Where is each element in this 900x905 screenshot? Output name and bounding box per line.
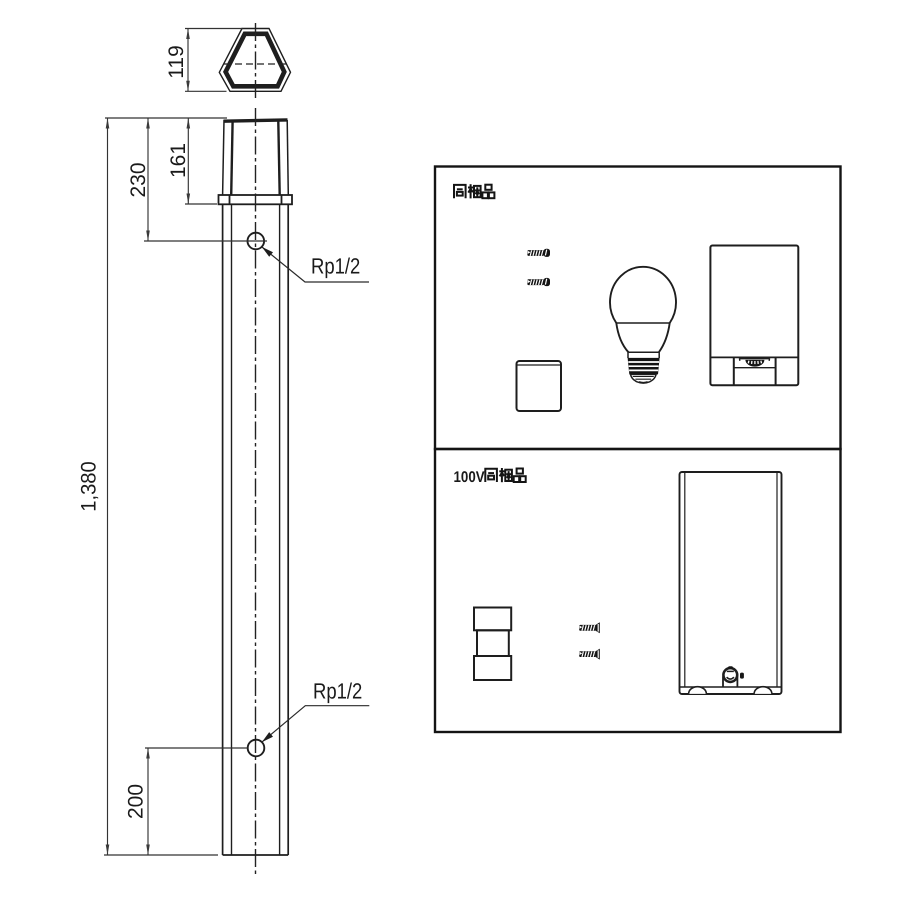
svg-text:161: 161 bbox=[167, 143, 190, 178]
svg-text:200: 200 bbox=[124, 784, 147, 819]
svg-text:Rp1/2: Rp1/2 bbox=[313, 679, 362, 704]
svg-text:1,380: 1,380 bbox=[78, 461, 101, 511]
svg-text:119: 119 bbox=[165, 45, 188, 78]
svg-text:Rp1/2: Rp1/2 bbox=[311, 254, 360, 279]
svg-text:230: 230 bbox=[127, 162, 150, 197]
svg-text:100V: 100V bbox=[454, 469, 486, 486]
